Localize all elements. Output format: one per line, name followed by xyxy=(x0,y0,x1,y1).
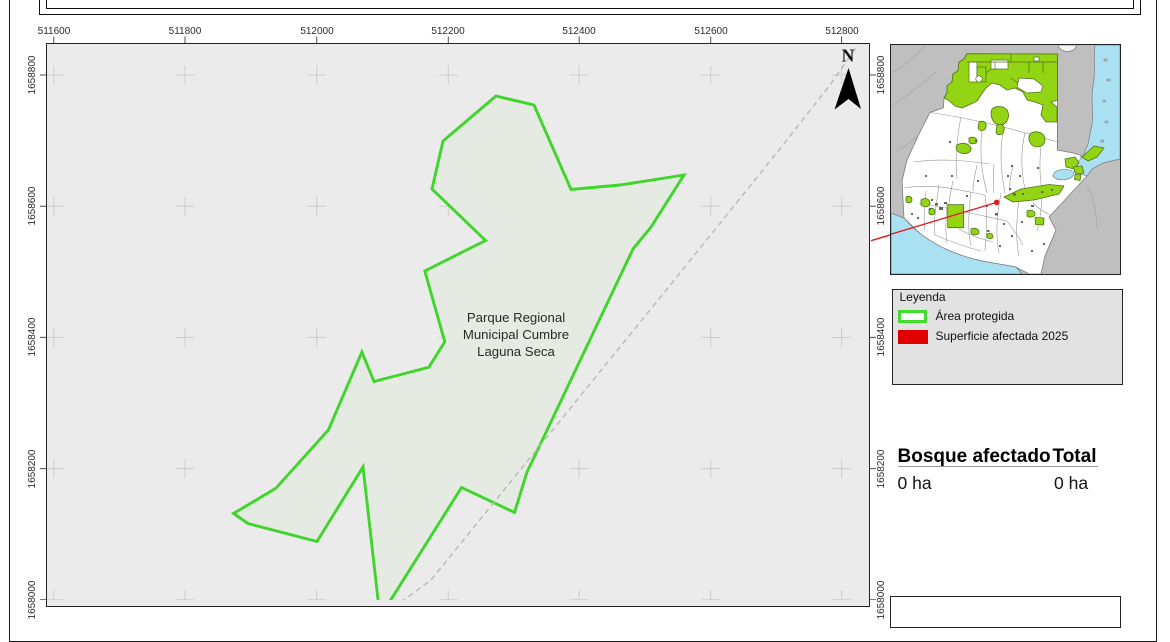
svg-text:N: N xyxy=(842,46,855,66)
